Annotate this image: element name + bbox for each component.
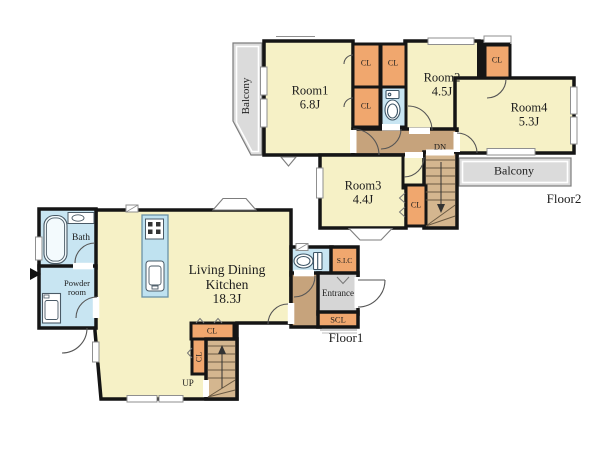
room3-size: 4.4J (345, 193, 382, 207)
closet-f2-2-label: CL (388, 60, 398, 69)
door-opening (203, 380, 209, 397)
door-opening (288, 303, 295, 324)
powder-line2: room (64, 288, 90, 297)
closet-f2-4-label: CL (492, 57, 502, 66)
sic-label: S.I.C (337, 257, 352, 265)
floor-plan-drawing (0, 0, 600, 450)
door-opening (350, 130, 357, 153)
vanity-sink-icon (68, 213, 94, 224)
scl-label: SCL (330, 315, 346, 324)
door-opening (405, 152, 423, 158)
room4-name: Room4 (511, 102, 548, 116)
stairs-up-label: UP (182, 379, 194, 389)
room4-size: 5.3J (511, 115, 548, 129)
room3-label: Room3 4.4J (345, 180, 382, 207)
floor1-label: Floor1 (329, 331, 364, 345)
door-opening (294, 270, 314, 277)
closet-f2-5-label: CL (411, 202, 421, 211)
ldk-size: 18.3J (189, 292, 266, 307)
door-opening (382, 124, 400, 131)
sink-icon (146, 261, 164, 291)
washing-machine-icon (43, 294, 61, 324)
bath-label: Bath (72, 233, 90, 243)
door-opening (355, 277, 362, 308)
door-opening (409, 128, 430, 135)
closet-f2-3-label: CL (361, 103, 371, 112)
room1-name: Room1 (292, 85, 329, 99)
ldk-label: Living Dining Kitchen 18.3J (189, 263, 266, 307)
room2-name: Room2 (424, 72, 461, 86)
closet-f1-1-label: CL (207, 327, 217, 336)
entrance-label: Entrance (322, 289, 354, 299)
room3-name: Room3 (345, 180, 382, 194)
room2-label: Room2 4.5J (424, 72, 461, 99)
hall-floor1 (291, 273, 320, 327)
room1-size: 6.8J (292, 98, 329, 112)
stove-icon (146, 219, 164, 239)
balcony-right-label: Balcony (494, 165, 534, 178)
door-opening (93, 297, 100, 318)
door-opening (73, 263, 93, 270)
toilet-icon (294, 253, 322, 270)
balcony-left-label: Balcony (241, 78, 253, 115)
toilet-icon (385, 91, 400, 121)
closet-f1-2-label: CL (196, 352, 205, 362)
room1-label: Room1 6.8J (292, 85, 329, 112)
floor2-label: Floor2 (547, 192, 582, 206)
powder-room-label: Powder room (64, 279, 90, 297)
bay-window-ldk (213, 199, 256, 211)
ldk-line2: Kitchen (189, 278, 266, 293)
ldk-line1: Living Dining (189, 263, 266, 278)
bathtub-icon (44, 216, 67, 264)
floor-plan: Balcony Room1 6.8J Room2 4.5J Room4 5.3J… (0, 0, 600, 450)
room4-label: Room4 5.3J (511, 102, 548, 129)
door-opening (454, 132, 461, 152)
stairs-down-label: DN (434, 142, 446, 151)
room2-size: 4.5J (424, 85, 461, 99)
bay-window-room3 (349, 229, 392, 241)
closet-f2-1-label: CL (361, 60, 371, 69)
wall-marker-room1 (281, 157, 296, 166)
